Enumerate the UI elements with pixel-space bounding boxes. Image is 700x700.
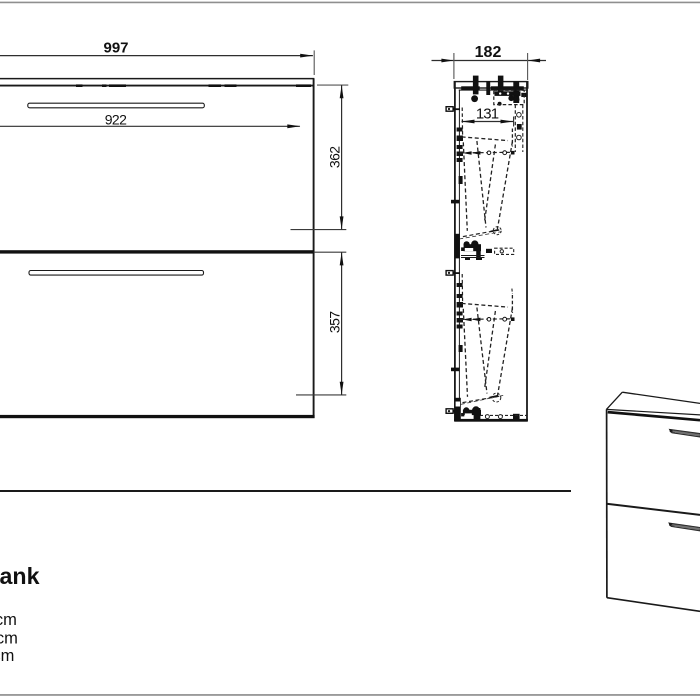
svg-text:rank: rank <box>0 563 40 589</box>
svg-text:Breite: 100 cm: Breite: 100 cm <box>0 611 17 629</box>
svg-text:182: 182 <box>475 44 502 61</box>
svg-text:357: 357 <box>327 311 343 333</box>
svg-text:131: 131 <box>476 105 499 122</box>
svg-text:922: 922 <box>105 111 127 127</box>
svg-text:997: 997 <box>103 39 128 56</box>
svg-text:Tiefe: 19,4 cm: Tiefe: 19,4 cm <box>0 647 14 665</box>
svg-text:Höhe: 78,7 cm: Höhe: 78,7 cm <box>0 629 18 647</box>
svg-text:362: 362 <box>327 146 343 168</box>
